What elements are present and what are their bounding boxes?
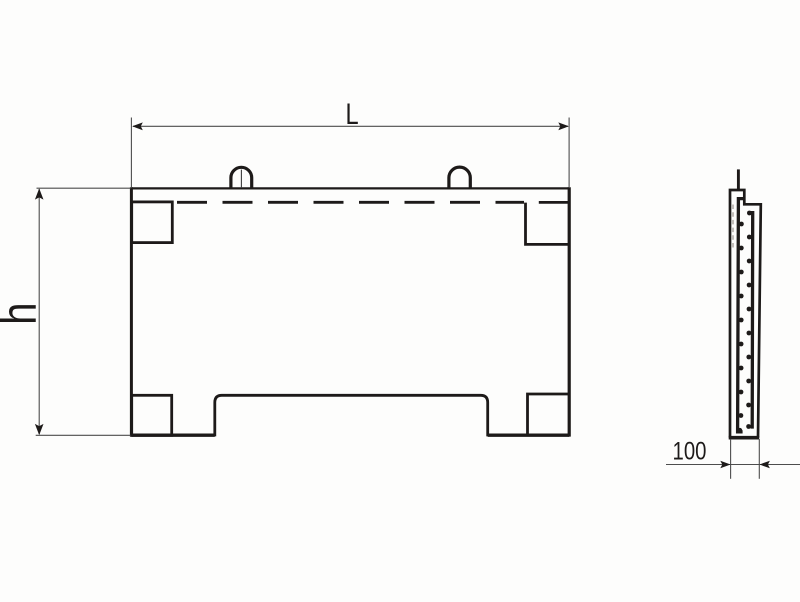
svg-text:L: L	[345, 97, 358, 130]
svg-text:h: h	[0, 302, 47, 324]
svg-text:100: 100	[673, 436, 707, 465]
